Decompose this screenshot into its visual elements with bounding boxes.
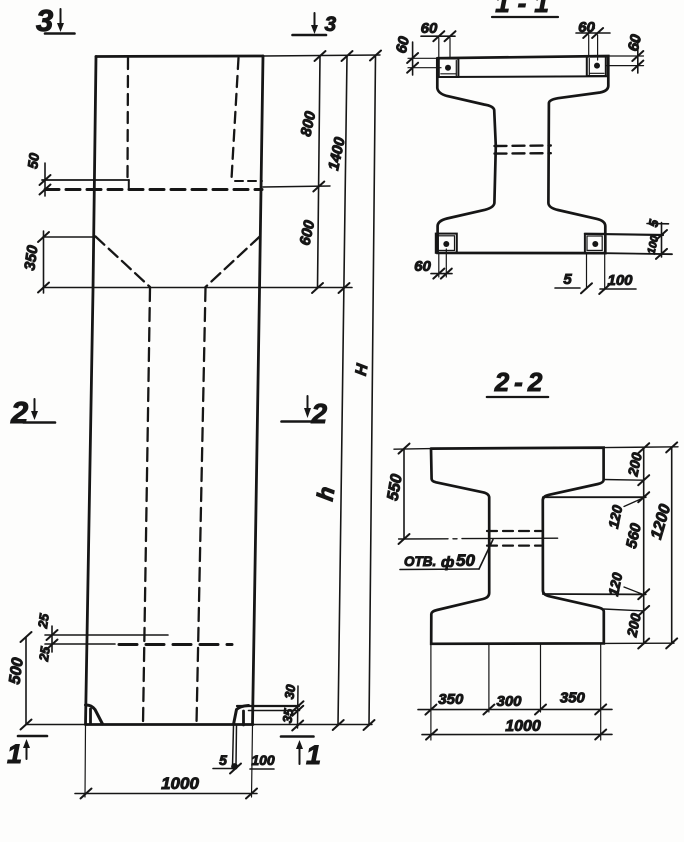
svg-text:60: 60 (414, 258, 431, 275)
svg-text:200: 200 (624, 451, 645, 478)
svg-text:1: 1 (7, 739, 22, 769)
svg-text:25: 25 (36, 645, 53, 663)
svg-text:25: 25 (35, 612, 52, 630)
svg-text:ОТВ.: ОТВ. (404, 554, 436, 569)
svg-text:120: 120 (605, 503, 626, 529)
svg-text:1000: 1000 (161, 774, 199, 793)
svg-text:50: 50 (24, 152, 42, 170)
svg-text:2: 2 (10, 395, 28, 430)
svg-text:5: 5 (563, 271, 572, 288)
svg-text:100: 100 (251, 752, 275, 768)
svg-text:2: 2 (311, 398, 328, 429)
svg-text:120: 120 (605, 571, 626, 597)
svg-text:5: 5 (219, 752, 227, 768)
svg-text:1: 1 (306, 740, 321, 770)
svg-text:200: 200 (623, 612, 644, 639)
svg-text:3: 3 (325, 13, 337, 36)
svg-text:60: 60 (625, 32, 645, 52)
svg-text:550: 550 (385, 473, 406, 502)
svg-text:350: 350 (438, 691, 464, 708)
svg-text:60: 60 (421, 20, 438, 37)
svg-text:1000: 1000 (505, 718, 541, 735)
svg-text:30: 30 (282, 683, 299, 700)
svg-text:300: 300 (496, 693, 522, 710)
svg-text:2-2: 2-2 (494, 367, 548, 397)
svg-text:5: 5 (645, 217, 661, 228)
svg-text:50: 50 (456, 551, 475, 570)
svg-text:100: 100 (607, 272, 633, 289)
svg-text:H: H (353, 362, 372, 377)
svg-text:500: 500 (6, 656, 27, 685)
svg-text:60: 60 (393, 34, 413, 54)
svg-text:35: 35 (280, 707, 297, 724)
svg-text:h: h (312, 484, 340, 502)
svg-text:350: 350 (560, 690, 586, 707)
svg-text:1-1: 1-1 (495, 0, 557, 18)
svg-text:1200: 1200 (648, 502, 674, 541)
svg-text:350: 350 (21, 244, 41, 272)
svg-text:560: 560 (623, 521, 645, 550)
svg-text:600: 600 (297, 218, 319, 247)
svg-text:800: 800 (298, 109, 320, 138)
